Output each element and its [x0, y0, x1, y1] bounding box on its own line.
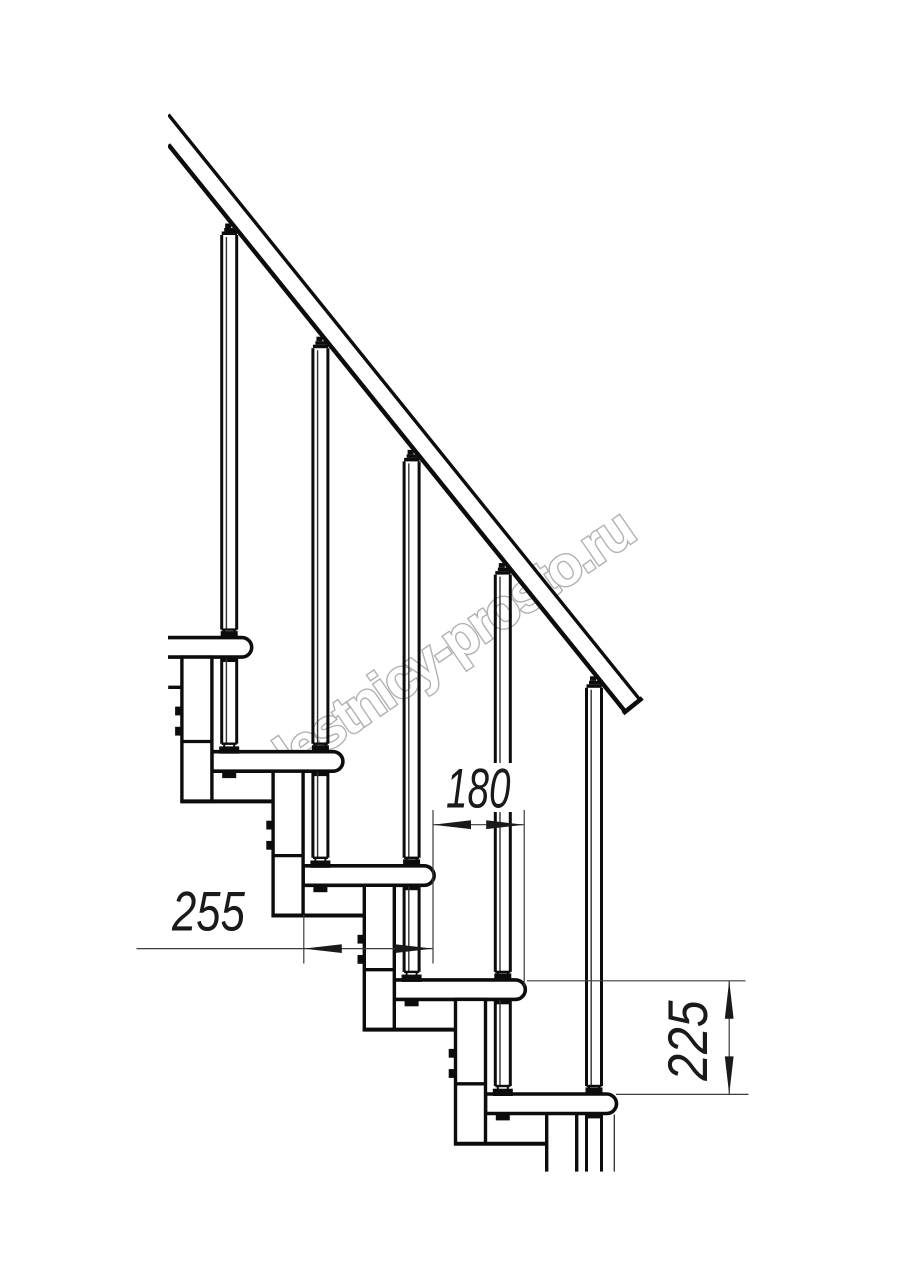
svg-text:225: 225 [656, 1000, 719, 1082]
svg-text:180: 180 [446, 757, 510, 820]
svg-text:255: 255 [171, 880, 245, 943]
